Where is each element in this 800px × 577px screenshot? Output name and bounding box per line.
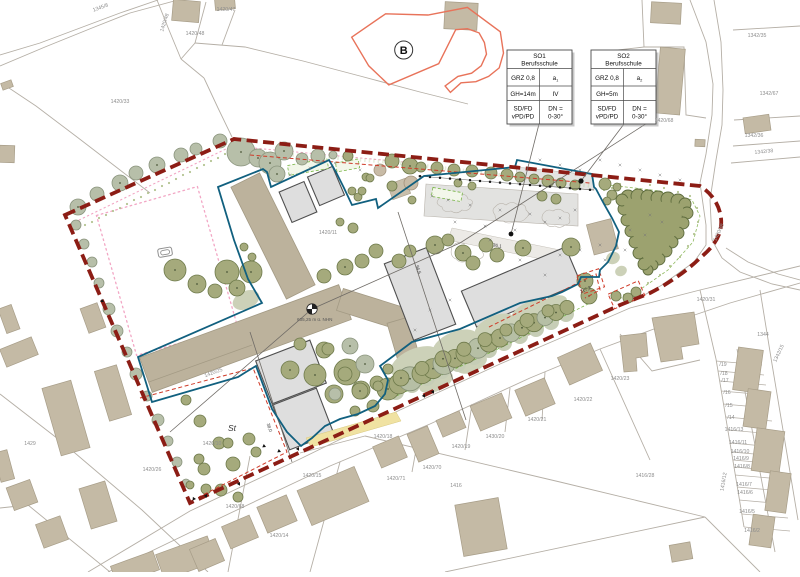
svg-text:1420/23: 1420/23 bbox=[611, 376, 630, 382]
svg-text:1416: 1416 bbox=[450, 483, 462, 489]
svg-text:1420/14: 1420/14 bbox=[270, 533, 289, 539]
svg-text:1420/11: 1420/11 bbox=[319, 230, 337, 236]
svg-text:1416/8: 1416/8 bbox=[734, 464, 750, 470]
svg-text:1420/21: 1420/21 bbox=[528, 417, 547, 423]
svg-text:1342/35: 1342/35 bbox=[748, 33, 767, 39]
svg-text:GH=14m: GH=14m bbox=[510, 91, 535, 98]
svg-text:SO2: SO2 bbox=[617, 53, 630, 60]
svg-text:1420/31: 1420/31 bbox=[697, 297, 716, 303]
svg-text:1420/19: 1420/19 bbox=[452, 444, 471, 450]
svg-text:GH=5m: GH=5m bbox=[596, 91, 618, 98]
svg-text:Berufsschule: Berufsschule bbox=[521, 61, 558, 68]
svg-text:1420/33: 1420/33 bbox=[111, 99, 130, 105]
svg-text:1344: 1344 bbox=[757, 332, 769, 338]
svg-text:1416/2: 1416/2 bbox=[744, 528, 760, 534]
svg-text:SO1: SO1 bbox=[533, 53, 546, 60]
svg-text:SD/FD: SD/FD bbox=[514, 106, 533, 113]
svg-text:vPD/PD: vPD/PD bbox=[596, 114, 619, 121]
svg-text:/17: /17 bbox=[721, 378, 728, 384]
svg-text:St: St bbox=[228, 423, 237, 433]
svg-text:0-30°: 0-30° bbox=[548, 113, 564, 121]
svg-text:1416/11: 1416/11 bbox=[729, 440, 747, 446]
svg-text:1342/36: 1342/36 bbox=[745, 133, 764, 139]
svg-text:SD/FD: SD/FD bbox=[598, 106, 617, 113]
svg-text:1430/20: 1430/20 bbox=[486, 434, 505, 440]
svg-text:635,25 m ü. NHN: 635,25 m ü. NHN bbox=[297, 317, 333, 322]
svg-text:1420/10: 1420/10 bbox=[203, 441, 222, 447]
svg-text:1420/70: 1420/70 bbox=[423, 465, 442, 471]
svg-text:B: B bbox=[400, 45, 408, 57]
svg-text:DN =: DN = bbox=[632, 106, 647, 113]
svg-text:1420/48: 1420/48 bbox=[186, 31, 205, 37]
svg-text:GRZ 0,8: GRZ 0,8 bbox=[595, 75, 619, 82]
svg-text:1420/22: 1420/22 bbox=[574, 397, 593, 403]
svg-text:/19: /19 bbox=[719, 362, 726, 368]
svg-text:1416/10: 1416/10 bbox=[731, 449, 750, 455]
svg-text:1416/7: 1416/7 bbox=[736, 482, 752, 488]
svg-text:IV: IV bbox=[553, 91, 560, 98]
svg-text:1420/47: 1420/47 bbox=[217, 7, 236, 13]
svg-text:1342/67: 1342/67 bbox=[760, 91, 779, 97]
svg-text:/14: /14 bbox=[727, 415, 734, 421]
svg-text:/18: /18 bbox=[720, 371, 727, 377]
svg-text:1420/71: 1420/71 bbox=[387, 476, 406, 482]
svg-text:1420/68: 1420/68 bbox=[655, 118, 674, 124]
svg-text:1420/18: 1420/18 bbox=[374, 434, 393, 440]
svg-text:1416/5: 1416/5 bbox=[739, 509, 755, 515]
svg-text:1420/26: 1420/26 bbox=[143, 467, 162, 473]
svg-text:GRZ 0,8: GRZ 0,8 bbox=[511, 75, 535, 82]
svg-text:1420/15: 1420/15 bbox=[303, 473, 322, 479]
svg-text:1420/68: 1420/68 bbox=[226, 504, 245, 510]
svg-text:/16: /16 bbox=[723, 390, 730, 396]
svg-text:Berufsschule: Berufsschule bbox=[605, 61, 642, 68]
svg-text:1416/9: 1416/9 bbox=[733, 456, 749, 462]
svg-text:vPD/PD: vPD/PD bbox=[512, 114, 535, 121]
svg-text:1416/28: 1416/28 bbox=[636, 473, 655, 479]
svg-text:1416/6: 1416/6 bbox=[737, 490, 753, 496]
svg-text:1429: 1429 bbox=[24, 441, 36, 447]
svg-text:DN =: DN = bbox=[548, 106, 563, 113]
svg-text:1416/13: 1416/13 bbox=[725, 427, 744, 433]
svg-text:0-30°: 0-30° bbox=[632, 113, 648, 121]
svg-text:/15: /15 bbox=[725, 403, 732, 409]
